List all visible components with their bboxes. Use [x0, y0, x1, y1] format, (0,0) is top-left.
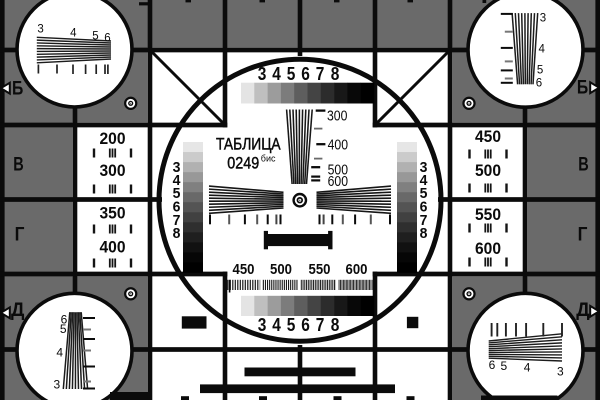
svg-text:7: 7 [316, 64, 325, 84]
svg-text:6: 6 [489, 358, 496, 372]
svg-text:В: В [13, 154, 24, 175]
svg-text:5: 5 [287, 315, 296, 335]
svg-text:500: 500 [270, 262, 292, 278]
svg-text:450: 450 [475, 127, 501, 146]
svg-text:4: 4 [272, 64, 281, 84]
svg-text:4: 4 [56, 345, 63, 359]
svg-text:Д: Д [11, 300, 25, 321]
svg-text:5: 5 [501, 359, 508, 373]
svg-text:4: 4 [70, 28, 77, 40]
svg-text:3: 3 [53, 377, 60, 391]
svg-text:бис: бис [261, 154, 276, 164]
svg-text:550: 550 [475, 205, 501, 224]
svg-text:600: 600 [328, 174, 348, 190]
svg-text:Б: Б [577, 77, 588, 98]
svg-text:5: 5 [92, 31, 98, 43]
svg-text:4: 4 [524, 361, 531, 375]
svg-text:8: 8 [331, 315, 340, 335]
svg-text:3: 3 [557, 364, 564, 378]
svg-text:Д: Д [576, 300, 590, 321]
svg-text:550: 550 [309, 262, 331, 278]
svg-text:3: 3 [258, 64, 267, 84]
svg-text:6: 6 [536, 78, 542, 90]
svg-text:ТАБЛИЦА: ТАБЛИЦА [216, 134, 281, 153]
svg-text:600: 600 [346, 262, 368, 278]
svg-text:600: 600 [475, 239, 501, 258]
svg-text:5: 5 [287, 64, 296, 84]
svg-text:6: 6 [301, 315, 310, 335]
svg-text:Г: Г [578, 224, 588, 245]
svg-text:4: 4 [538, 43, 545, 55]
svg-text:Б: Б [12, 78, 23, 99]
svg-text:8: 8 [420, 225, 428, 242]
svg-text:400: 400 [328, 138, 348, 154]
svg-text:4: 4 [272, 315, 281, 335]
svg-text:6: 6 [104, 32, 110, 44]
svg-text:8: 8 [331, 64, 340, 84]
svg-text:6: 6 [301, 64, 310, 84]
svg-text:5: 5 [60, 322, 67, 336]
svg-text:3: 3 [37, 24, 43, 36]
svg-text:В: В [578, 154, 589, 175]
svg-text:7: 7 [316, 315, 325, 335]
svg-text:300: 300 [100, 161, 126, 180]
svg-text:0249: 0249 [227, 154, 259, 173]
svg-text:350: 350 [100, 203, 126, 222]
svg-text:8: 8 [173, 225, 181, 242]
svg-text:450: 450 [233, 262, 255, 278]
svg-text:400: 400 [100, 237, 126, 256]
svg-text:300: 300 [327, 108, 347, 124]
svg-text:Г: Г [15, 224, 25, 245]
svg-text:5: 5 [537, 65, 543, 77]
svg-text:200: 200 [100, 129, 126, 148]
svg-text:500: 500 [475, 161, 501, 180]
svg-text:3: 3 [258, 315, 267, 335]
svg-text:3: 3 [540, 12, 546, 24]
